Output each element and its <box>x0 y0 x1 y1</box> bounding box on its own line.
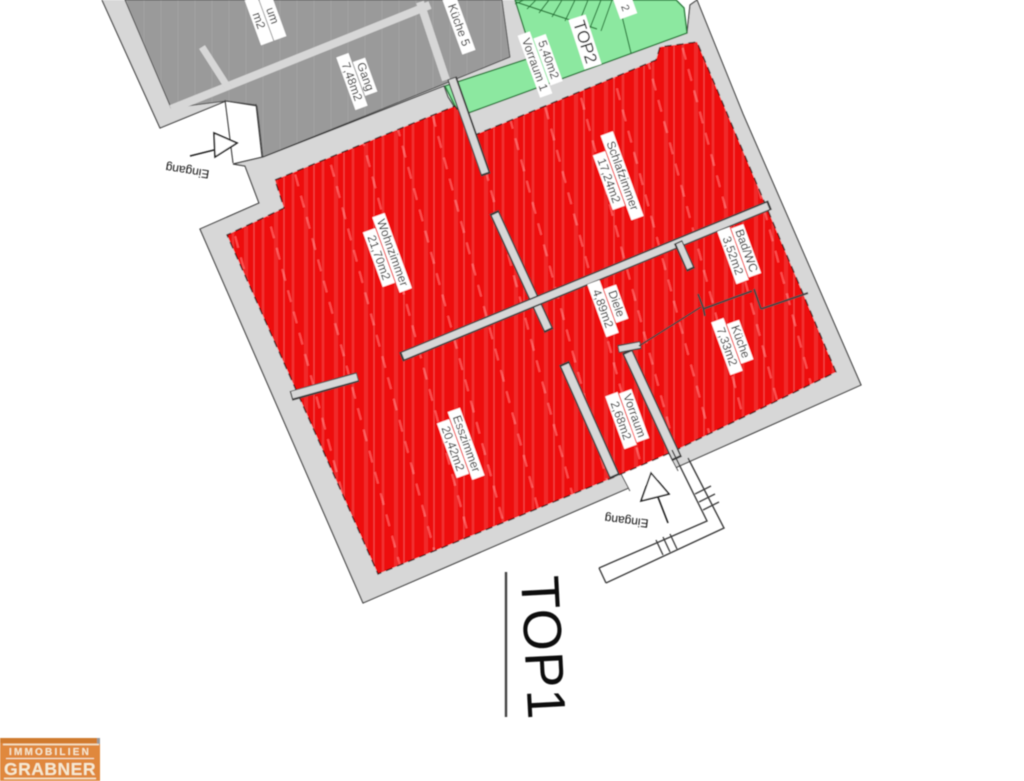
svg-text:TOP1: TOP1 <box>509 574 576 721</box>
svg-text:IMMOBILIEN: IMMOBILIEN <box>9 747 91 758</box>
svg-text:GRABNER: GRABNER <box>4 759 96 779</box>
